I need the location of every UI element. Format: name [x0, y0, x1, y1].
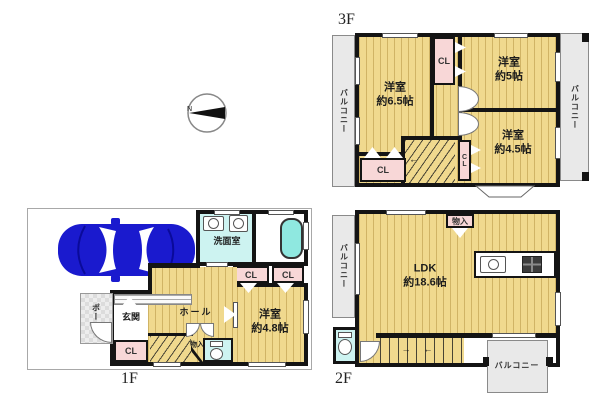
bay-window-3f	[475, 185, 535, 199]
room-size: 約4.8帖	[251, 322, 288, 336]
window	[153, 362, 181, 367]
washing-machine-icon	[229, 215, 248, 232]
room-name: 洋室	[251, 308, 288, 322]
room-name: 洋室	[495, 56, 523, 70]
room-west-3f-label: 洋室 約6.5帖	[376, 81, 413, 110]
entrance-1f-label: 玄関	[122, 312, 140, 324]
closet-a-1f-label: CL	[245, 270, 257, 280]
stairs-3f-arrow: ←	[409, 154, 419, 167]
compass-icon: N	[186, 92, 228, 134]
balcony-post	[483, 357, 489, 366]
wall-segment	[148, 263, 152, 294]
ldk-label: LDK 約18.6帖	[403, 262, 446, 291]
closet-top-3f: CL	[433, 37, 455, 85]
closet-b-1f: CL	[272, 266, 304, 283]
room-name: 洋室	[494, 129, 531, 143]
closet-bottom-3f: CL	[360, 158, 406, 182]
wall-segment	[462, 108, 556, 112]
hall-1f-label: ホール	[179, 307, 212, 319]
room-se-3f-label: 洋室 約4.5帖	[494, 129, 531, 158]
balcony-left-2f-label: バルコニー	[339, 244, 350, 289]
floor-label-3f: 3F	[338, 11, 355, 29]
wall-segment	[252, 214, 256, 262]
bedroom-1f-label: 洋室 約4.8帖	[251, 308, 288, 337]
closet-stair-3f: CL	[458, 140, 471, 181]
window	[555, 292, 561, 326]
stairs-2f	[380, 338, 462, 363]
closet-b-1f-label: CL	[282, 270, 294, 280]
ldk-name: LDK	[403, 262, 446, 276]
closet-bottom-3f-label: CL	[377, 165, 389, 175]
window	[214, 210, 240, 215]
stairs-2f-arrow-left: ←	[424, 344, 433, 356]
window	[355, 243, 360, 295]
stove-icon	[522, 256, 542, 273]
balcony-right-3f-label: バルコニー	[570, 85, 581, 130]
bathtub-icon	[280, 218, 303, 259]
closet-entrance-1f: CL	[114, 340, 148, 362]
room-size: 約6.5帖	[376, 95, 413, 109]
balcony-bottom-2f-label: バルコニー	[495, 361, 540, 371]
wall-segment	[148, 263, 200, 268]
balcony-left-3f-label: バルコニー	[339, 89, 350, 134]
toilet-bowl-1f	[210, 348, 223, 360]
closet-stair-3f-label: CL	[461, 154, 468, 168]
window	[494, 33, 528, 38]
floor-label-1f: 1F	[121, 370, 138, 388]
toilet-icon-1f	[210, 341, 223, 347]
window	[303, 300, 309, 334]
compass-north-label: N	[187, 106, 192, 113]
sink-basin	[208, 218, 219, 229]
balcony-post	[582, 172, 589, 181]
window	[248, 362, 286, 367]
window	[382, 33, 418, 38]
storage-2f-label: 物入	[452, 216, 468, 227]
washer-drum	[233, 218, 244, 229]
balcony-post	[546, 357, 553, 366]
window	[355, 57, 360, 85]
ldk-size: 約18.6帖	[403, 276, 446, 290]
window	[355, 117, 360, 145]
stairs-2f-arrow-right: →	[402, 344, 411, 356]
balcony-door	[492, 333, 536, 338]
stairs-1f	[150, 336, 191, 362]
kitchen-sink-icon	[480, 256, 506, 273]
window	[386, 210, 426, 215]
closet-a-1f: CL	[233, 266, 269, 283]
toilet-icon-2f	[338, 332, 352, 338]
washroom-1f-label: 洗面室	[213, 236, 240, 248]
window	[303, 222, 309, 250]
storage-2f: 物入	[446, 214, 474, 228]
window	[268, 210, 294, 215]
room-ne-3f-label: 洋室 約5帖	[495, 56, 523, 85]
floor-plan-canvas: N 3F バルコニー CL ← CL CL バルコニー 洋室 約6.5帖	[0, 0, 600, 409]
room-size: 約4.5帖	[494, 143, 531, 157]
closet-entrance-1f-label: CL	[125, 346, 137, 356]
sink-basin	[488, 259, 499, 270]
sink-icon	[203, 216, 224, 231]
toilet-bowl-2f	[338, 339, 352, 355]
room-name: 洋室	[376, 81, 413, 95]
room-size: 約5帖	[495, 70, 523, 84]
closet-top-3f-label: CL	[438, 56, 450, 66]
floor-label-2f: 2F	[335, 370, 352, 388]
balcony-post	[582, 33, 589, 42]
